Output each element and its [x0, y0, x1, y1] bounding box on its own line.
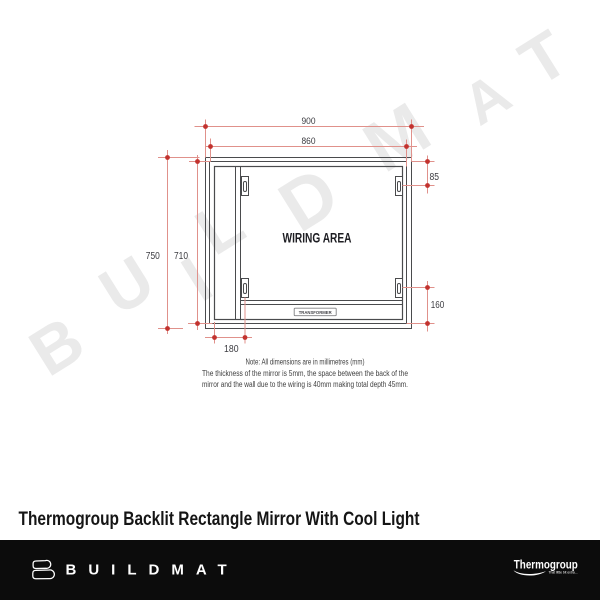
svg-text:BUILDMAT: BUILDMAT — [66, 562, 239, 579]
svg-text:900: 900 — [302, 116, 316, 127]
svg-text:710: 710 — [174, 251, 188, 262]
svg-text:WIRING AREA: WIRING AREA — [283, 230, 352, 245]
svg-text:160: 160 — [431, 300, 445, 311]
svg-text:That little bit extra...: That little bit extra... — [549, 571, 578, 575]
svg-text:750: 750 — [146, 251, 160, 262]
svg-text:The thickness of the mirror is: The thickness of the mirror is 5mm, the … — [202, 369, 408, 378]
svg-text:TRANSFORMER: TRANSFORMER — [299, 310, 332, 316]
svg-text:860: 860 — [302, 136, 316, 147]
svg-text:85: 85 — [430, 172, 440, 183]
svg-text:Thermogroup Backlit Rectangle: Thermogroup Backlit Rectangle Mirror Wit… — [19, 509, 421, 530]
svg-text:mirror and the wall due to the: mirror and the wall due to the wiring is… — [202, 380, 408, 389]
svg-text:180: 180 — [224, 344, 239, 355]
svg-text:Note: All dimensions are in mi: Note: All dimensions are in millimetres … — [246, 358, 365, 367]
